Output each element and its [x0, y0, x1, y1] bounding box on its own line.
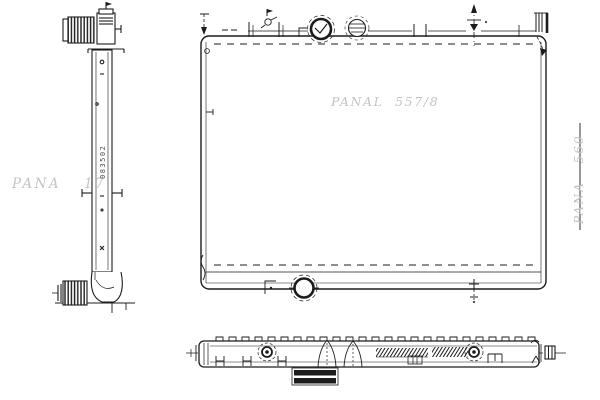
outlet-pipe-icon	[63, 281, 87, 305]
watermark-right: PANA 560	[572, 134, 586, 225]
watermark-center: PANAL 557/8	[330, 94, 439, 109]
drawing-sheet: PANA 17 PANAL 557/8 PANA 560 083502	[0, 0, 600, 400]
hatched-strip-icon	[432, 347, 468, 357]
watermark-left: PANA 17	[11, 176, 106, 192]
bottom-tank-icon	[91, 272, 122, 302]
front-view	[200, 4, 548, 303]
radiator-technical-drawing: PANA 17 PANAL 557/8 PANA 560 083502	[0, 0, 600, 400]
dimension-tick-right	[112, 189, 122, 197]
bottom-view	[186, 337, 566, 385]
bottom-pipe-stub-icon	[541, 344, 555, 362]
filler-cap-icon	[308, 16, 335, 43]
side-view	[52, 2, 135, 313]
inlet-pipe-icon	[68, 17, 94, 43]
foot-block-icon	[292, 368, 338, 385]
radiator-body-outline	[201, 36, 546, 289]
part-code-vertical: 083502	[99, 145, 107, 179]
filler-neck-icon	[97, 2, 121, 44]
vent-valve-icon	[261, 9, 277, 28]
